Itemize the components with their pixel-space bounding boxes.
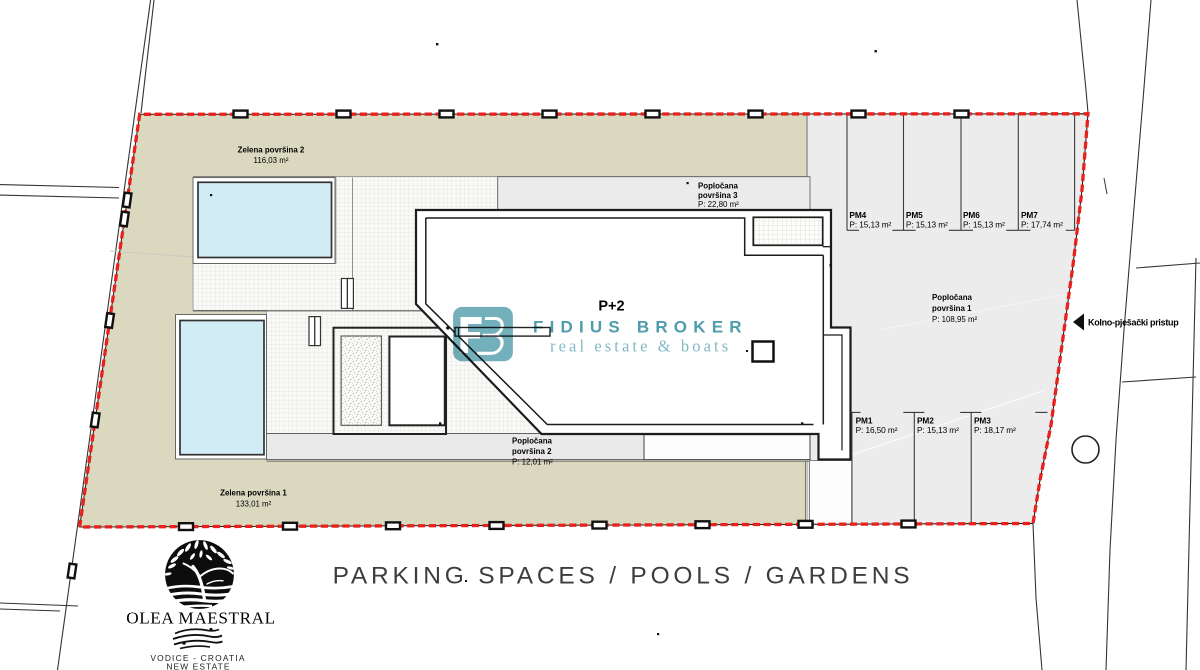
svg-text:P: 15,13 m²: P: 15,13 m² [849, 220, 891, 230]
svg-text:PM2: PM2 [917, 415, 934, 425]
svg-text:P: 15,13 m²: P: 15,13 m² [906, 220, 948, 230]
svg-text:P: 16,50 m²: P: 16,50 m² [856, 425, 898, 435]
svg-text:P: 15,13 m²: P: 15,13 m² [917, 425, 959, 435]
svg-text:P: 15,13 m²: P: 15,13 m² [963, 220, 1005, 230]
svg-text:P: 12,01 m²: P: 12,01 m² [512, 458, 553, 467]
svg-text:P+2: P+2 [598, 299, 624, 315]
svg-text:Kolno-pješački pristup: Kolno-pješački pristup [1088, 318, 1179, 328]
svg-text:Zelena površina 1: Zelena površina 1 [220, 489, 287, 498]
svg-text:Popločana: Popločana [512, 437, 553, 446]
svg-text:površina 1: površina 1 [932, 304, 972, 313]
svg-text:P: 18,17 m²: P: 18,17 m² [974, 425, 1016, 435]
svg-text:PM1: PM1 [856, 415, 873, 425]
svg-text:OLEA MAESTRAL: OLEA MAESTRAL [126, 609, 276, 628]
svg-text:116,03 m²: 116,03 m² [254, 156, 289, 165]
svg-text:real estate & boats: real estate & boats [550, 337, 731, 356]
svg-text:PARKING SPACES / POOLS /: PARKING SPACES / POOLS / GARDENS [333, 563, 914, 590]
svg-text:PM3: PM3 [974, 415, 991, 425]
svg-text:P: 22,80 m²: P: 22,80 m² [698, 200, 739, 209]
svg-text:Popločana: Popločana [698, 182, 739, 191]
svg-text:P: 17,74 m²: P: 17,74 m² [1021, 220, 1063, 230]
svg-text:P: 108,95 m²: P: 108,95 m² [932, 315, 978, 324]
svg-text:površina 3: površina 3 [698, 191, 738, 200]
svg-text:Zelena površina 2: Zelena površina 2 [238, 146, 305, 155]
svg-text:Popločana: Popločana [932, 293, 973, 302]
svg-text:NEW ESTATE: NEW ESTATE [166, 662, 230, 670]
svg-text:FIDIUS BROKER: FIDIUS BROKER [533, 318, 748, 337]
svg-text:površina 2: površina 2 [512, 447, 552, 456]
svg-text:133,01 m²: 133,01 m² [236, 500, 272, 509]
